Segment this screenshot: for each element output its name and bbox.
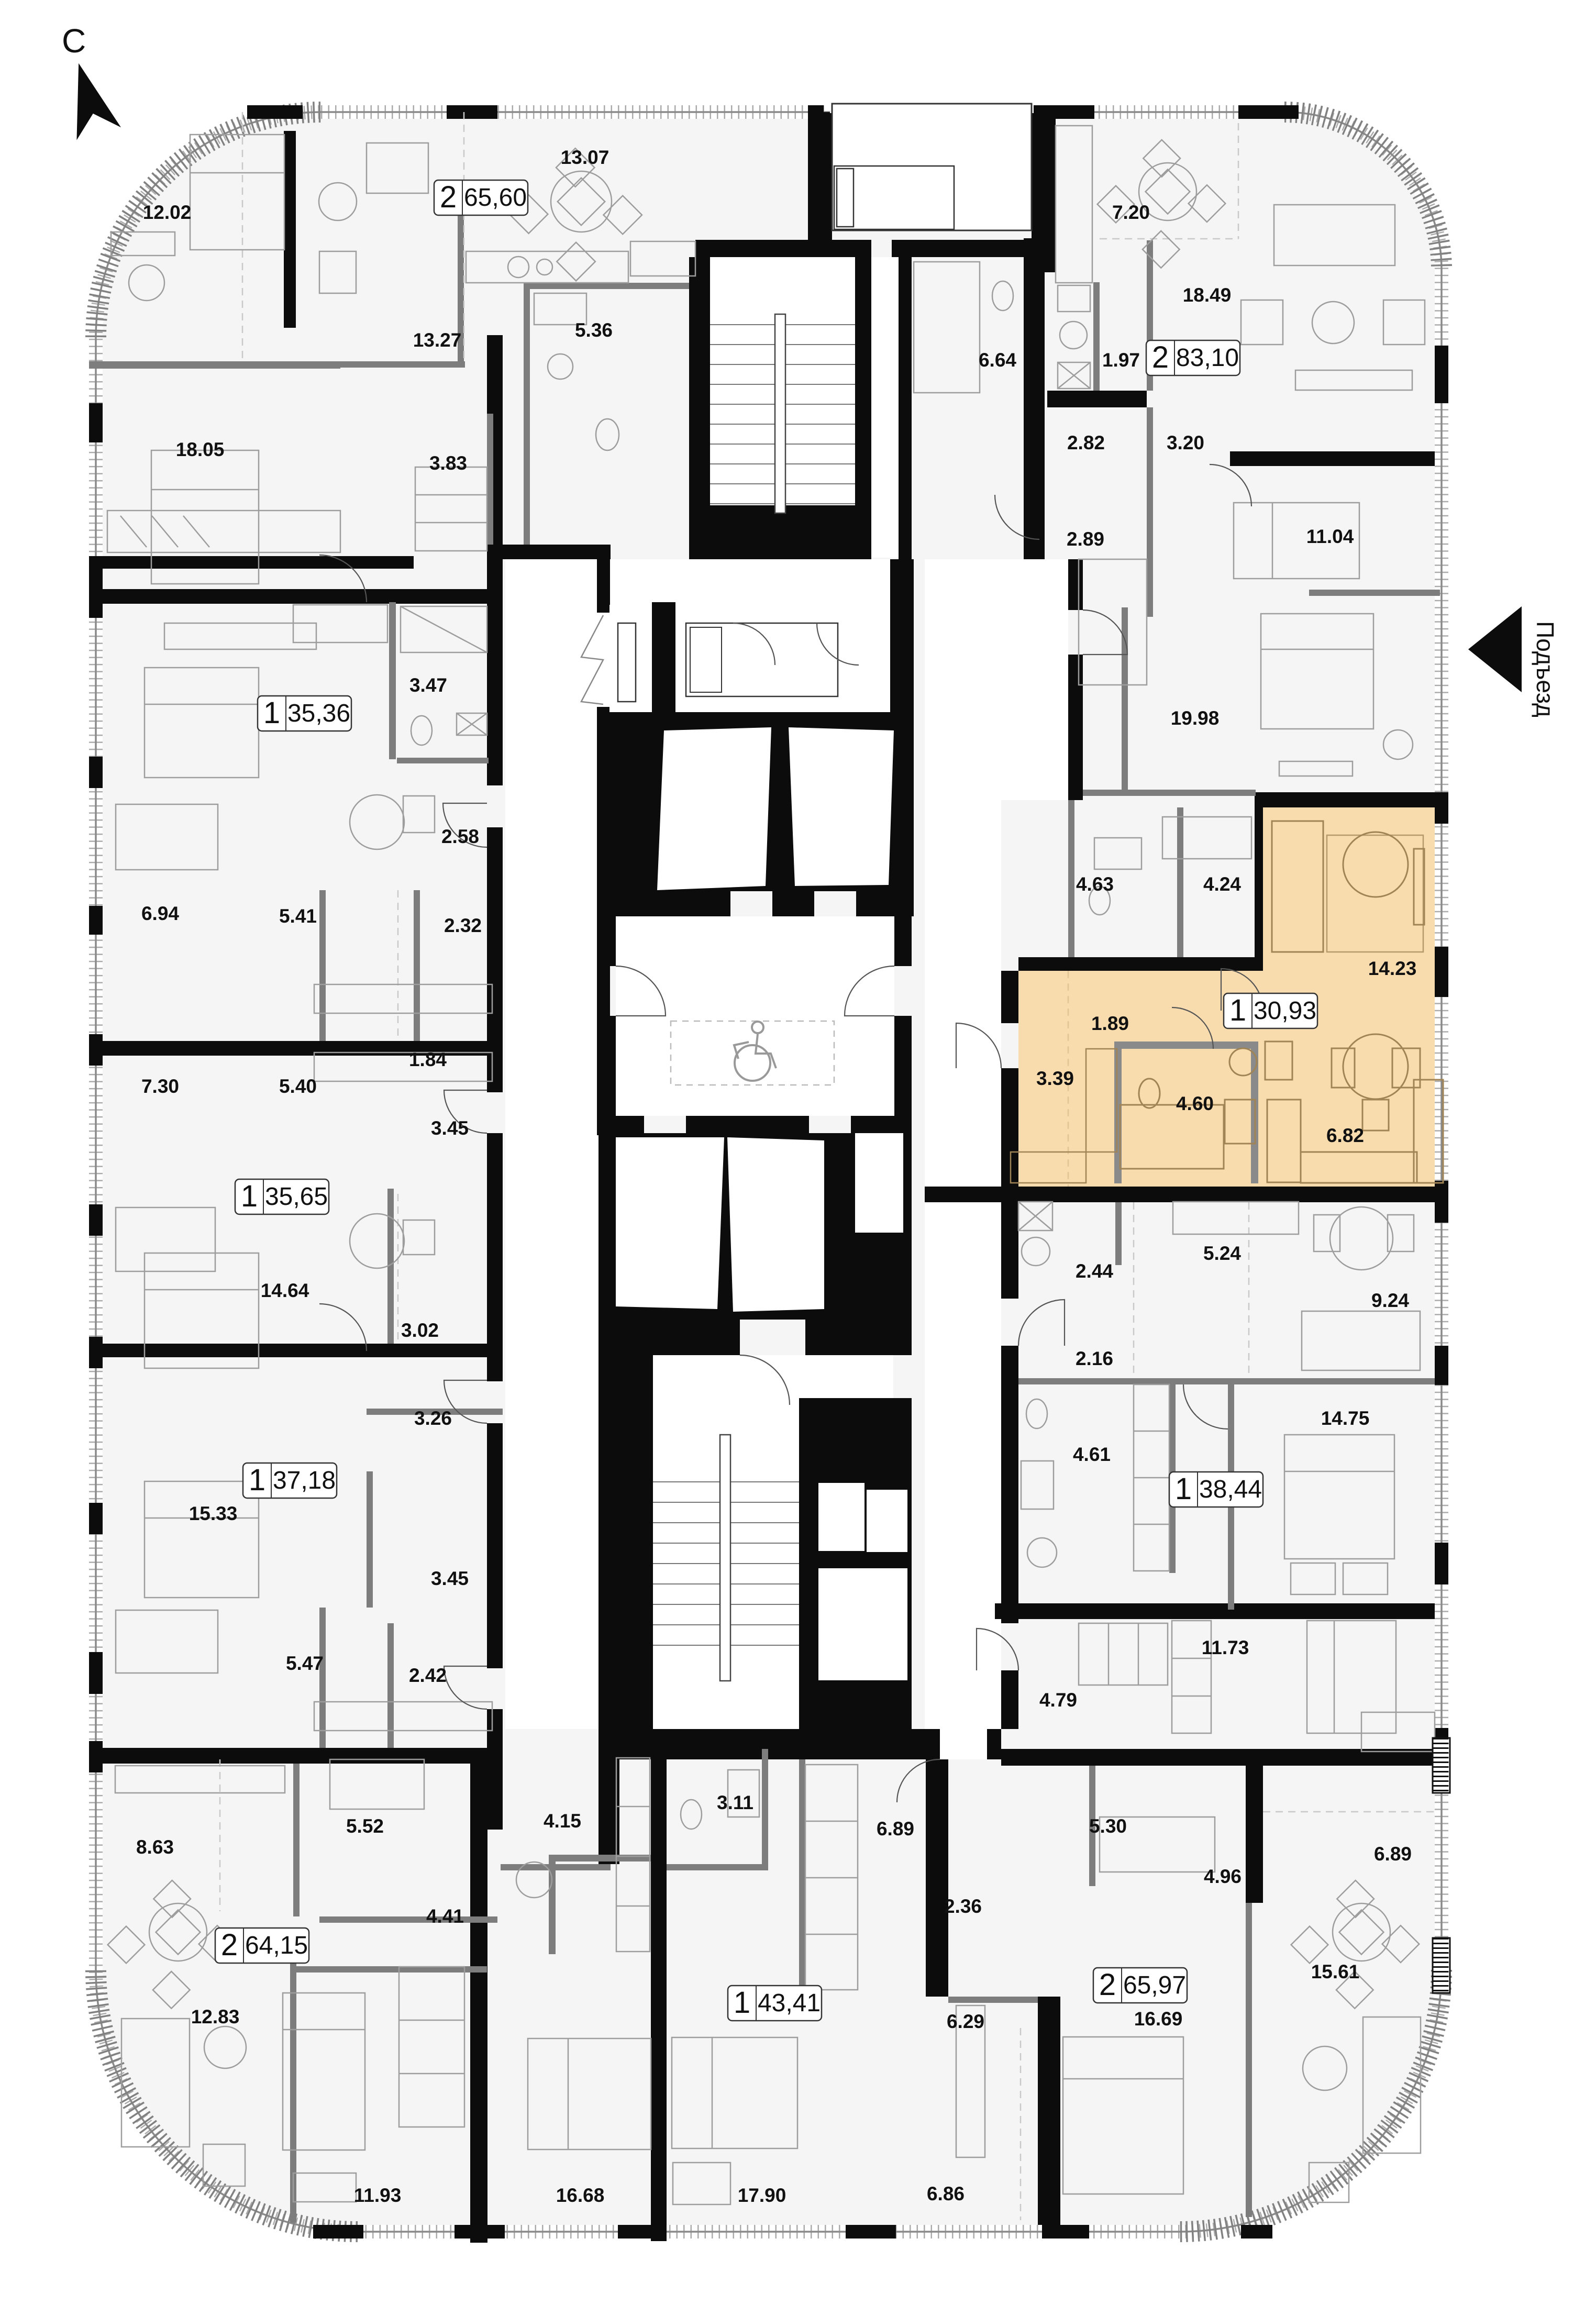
svg-text:3.45: 3.45 [431, 1117, 469, 1139]
svg-text:2: 2 [221, 1928, 238, 1962]
svg-text:2.58: 2.58 [441, 826, 479, 847]
svg-text:8.63: 8.63 [136, 1836, 174, 1858]
svg-text:3.02: 3.02 [401, 1320, 439, 1341]
svg-text:6.64: 6.64 [979, 349, 1016, 371]
svg-text:1: 1 [241, 1179, 258, 1213]
svg-text:14.75: 14.75 [1321, 1408, 1370, 1429]
svg-text:16.68: 16.68 [556, 2185, 605, 2206]
svg-text:6.94: 6.94 [141, 903, 179, 924]
svg-text:4.63: 4.63 [1076, 873, 1114, 895]
svg-text:6.82: 6.82 [1326, 1125, 1364, 1146]
svg-text:14.23: 14.23 [1368, 958, 1417, 979]
svg-text:2: 2 [1099, 1968, 1116, 2002]
svg-text:3.26: 3.26 [414, 1408, 452, 1429]
svg-text:2: 2 [1152, 340, 1169, 374]
svg-text:7.30: 7.30 [141, 1076, 179, 1097]
svg-text:5.52: 5.52 [346, 1815, 384, 1837]
svg-text:4.41: 4.41 [426, 1905, 464, 1927]
svg-text:1: 1 [1229, 993, 1246, 1027]
svg-text:4.60: 4.60 [1176, 1093, 1214, 1114]
svg-text:3.47: 3.47 [409, 674, 447, 696]
svg-text:11.93: 11.93 [354, 2185, 402, 2206]
svg-text:11.73: 11.73 [1202, 1637, 1249, 1658]
svg-text:11.04: 11.04 [1306, 526, 1354, 547]
svg-text:16.69: 16.69 [1134, 2008, 1183, 2030]
svg-text:2.89: 2.89 [1067, 528, 1104, 550]
svg-text:65,60: 65,60 [464, 184, 527, 212]
svg-text:2.36: 2.36 [944, 1896, 982, 1917]
svg-text:1.97: 1.97 [1102, 349, 1140, 371]
svg-text:12.83: 12.83 [191, 2006, 240, 2027]
svg-text:2: 2 [440, 180, 457, 214]
svg-text:5.24: 5.24 [1203, 1243, 1241, 1264]
svg-text:3.45: 3.45 [431, 1568, 469, 1589]
svg-text:2.42: 2.42 [409, 1665, 447, 1686]
svg-text:4.96: 4.96 [1204, 1866, 1242, 1887]
svg-text:3.20: 3.20 [1167, 432, 1204, 453]
svg-text:4.79: 4.79 [1039, 1689, 1077, 1711]
svg-text:5.47: 5.47 [286, 1653, 324, 1674]
svg-text:6.86: 6.86 [927, 2183, 965, 2204]
svg-text:4.15: 4.15 [544, 1810, 581, 1832]
svg-text:1: 1 [1175, 1472, 1192, 1506]
svg-text:1.84: 1.84 [409, 1049, 447, 1070]
svg-text:37,18: 37,18 [273, 1467, 336, 1494]
svg-text:6.89: 6.89 [877, 1818, 914, 1839]
svg-text:5.36: 5.36 [575, 319, 613, 341]
svg-text:Подъезд: Подъезд [1532, 621, 1559, 717]
svg-text:4.24: 4.24 [1203, 873, 1241, 895]
svg-text:2.16: 2.16 [1076, 1348, 1113, 1369]
svg-text:C: C [62, 22, 86, 60]
svg-text:7.20: 7.20 [1112, 202, 1150, 223]
svg-text:3.11: 3.11 [717, 1792, 753, 1813]
svg-text:1: 1 [263, 696, 280, 730]
svg-text:3.39: 3.39 [1036, 1068, 1074, 1089]
svg-text:5.30: 5.30 [1089, 1815, 1127, 1837]
svg-text:15.61: 15.61 [1311, 1961, 1360, 1982]
svg-text:13.07: 13.07 [561, 147, 609, 168]
svg-text:18.05: 18.05 [176, 439, 225, 460]
svg-text:4.61: 4.61 [1073, 1444, 1111, 1465]
svg-text:83,10: 83,10 [1176, 344, 1239, 372]
svg-text:43,41: 43,41 [758, 1989, 821, 2017]
svg-text:1: 1 [249, 1463, 265, 1497]
svg-text:65,97: 65,97 [1123, 1971, 1186, 1999]
svg-text:13.27: 13.27 [413, 329, 462, 351]
svg-text:19.98: 19.98 [1171, 707, 1220, 729]
svg-text:5.41: 5.41 [279, 905, 317, 927]
svg-text:14.64: 14.64 [261, 1280, 309, 1301]
svg-text:12.02: 12.02 [143, 202, 192, 223]
svg-text:35,65: 35,65 [265, 1183, 328, 1211]
svg-text:38,44: 38,44 [1199, 1476, 1262, 1503]
svg-text:1.89: 1.89 [1091, 1013, 1129, 1034]
svg-text:15.33: 15.33 [189, 1503, 238, 1524]
svg-text:35,36: 35,36 [287, 700, 350, 727]
svg-text:1: 1 [734, 1986, 750, 2020]
svg-text:6.89: 6.89 [1374, 1843, 1412, 1865]
svg-text:17.90: 17.90 [738, 2185, 786, 2206]
svg-text:30,93: 30,93 [1254, 997, 1316, 1025]
svg-text:5.40: 5.40 [279, 1076, 317, 1097]
svg-text:6.29: 6.29 [947, 2011, 984, 2032]
svg-text:3.83: 3.83 [429, 452, 467, 474]
svg-text:2.44: 2.44 [1076, 1260, 1113, 1282]
svg-text:64,15: 64,15 [245, 1932, 308, 1959]
svg-text:2.32: 2.32 [444, 915, 482, 936]
svg-text:9.24: 9.24 [1371, 1290, 1409, 1311]
svg-text:18.49: 18.49 [1183, 284, 1232, 306]
svg-text:2.82: 2.82 [1067, 432, 1105, 453]
